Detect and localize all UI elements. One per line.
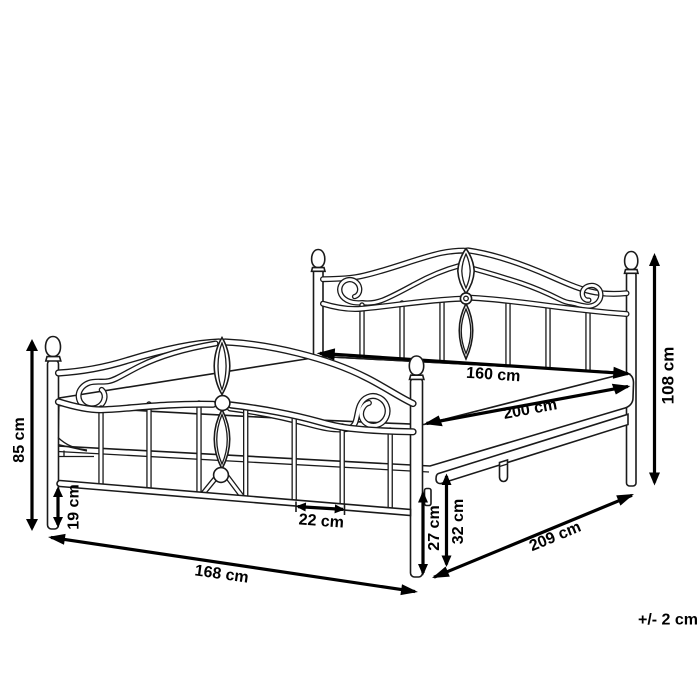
svg-text:85 cm: 85 cm: [11, 417, 28, 462]
svg-text:22 cm: 22 cm: [298, 511, 344, 531]
svg-text:108 cm: 108 cm: [659, 347, 678, 405]
svg-text:160 cm: 160 cm: [466, 365, 521, 386]
svg-text:27 cm: 27 cm: [426, 505, 443, 550]
svg-text:32 cm: 32 cm: [450, 499, 467, 544]
svg-text:19 cm: 19 cm: [66, 484, 83, 529]
svg-text:+/- 2 cm: +/- 2 cm: [638, 612, 698, 629]
